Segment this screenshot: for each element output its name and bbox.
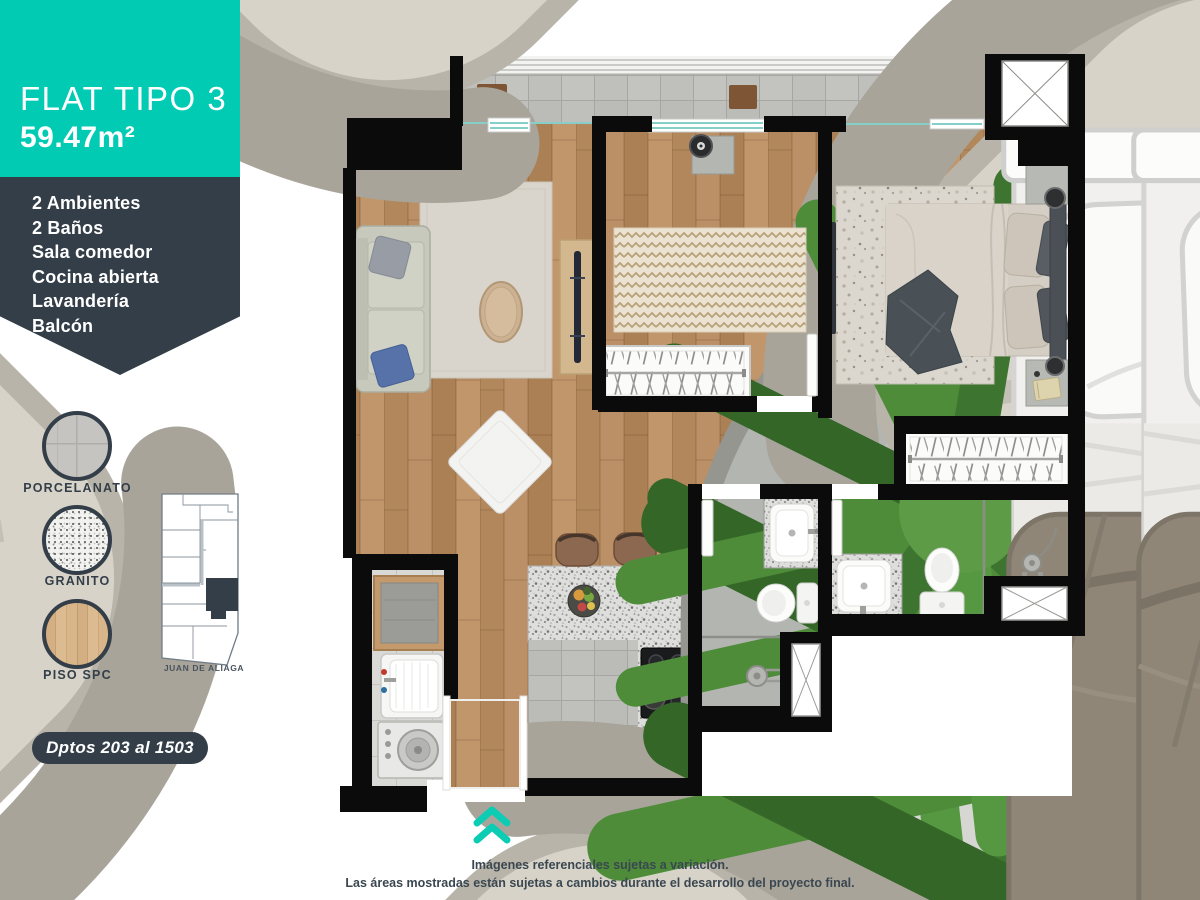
sink (837, 560, 891, 618)
page-title: FLAT TIPO 3 (20, 82, 240, 117)
laundry-sink (381, 654, 443, 718)
floors-badge: Dptos 203 al 1503 (32, 732, 208, 764)
disclaimer-line-2: Las áreas mostradas están sujetas a camb… (0, 874, 1200, 892)
headboard (1050, 196, 1066, 364)
porcelanato-swatch-icon (42, 411, 112, 481)
bedroom-door (807, 334, 817, 396)
elevator-shaft (1002, 61, 1068, 126)
laundry-area (374, 576, 445, 778)
header-banner: FLAT TIPO 3 59.47m² (0, 0, 240, 177)
window-sill (488, 118, 530, 132)
book (1033, 377, 1062, 400)
feature-item: Sala comedor (32, 240, 240, 265)
living-rug (420, 182, 552, 378)
floors-badge-text: Dptos 203 al 1503 (46, 738, 194, 758)
duct-shaft (792, 644, 820, 716)
disclaimer-line-1: Imágenes referenciales sujetas a variaci… (0, 856, 1200, 874)
disclaimer: Imágenes referenciales sujetas a variaci… (0, 856, 1200, 892)
double-bed (886, 196, 1070, 374)
fruit-bowl (568, 585, 600, 617)
location-minimap (156, 486, 248, 676)
entrance-door (443, 696, 527, 790)
sink (770, 504, 820, 562)
zigzag-rug (614, 228, 806, 332)
bathroom-door (702, 500, 713, 556)
exterior (702, 732, 832, 796)
clock (690, 135, 712, 157)
single-bed (1134, 130, 1200, 900)
tv-console (560, 240, 594, 374)
walk-in-closet (904, 432, 1068, 486)
feature-item: Cocina abierta (32, 265, 240, 290)
legend-label: PISO SPC (0, 668, 155, 682)
tv (574, 251, 581, 363)
lamp (1046, 357, 1064, 375)
legend-label: GRANITO (0, 574, 155, 588)
toilet (757, 583, 818, 623)
bathroom-door (832, 500, 842, 556)
bar-stool (556, 534, 598, 566)
feature-item: 2 Baños (32, 216, 240, 241)
exterior (832, 636, 1072, 796)
feature-item: Lavandería (32, 289, 240, 314)
legend-item-granito (42, 505, 112, 575)
area-value: 59.47m² (20, 121, 240, 155)
legend-item-piso-spc (42, 599, 112, 669)
piso-spc-swatch-icon (42, 599, 112, 669)
feature-item: 2 Ambientes (32, 191, 240, 216)
lamp (1045, 188, 1065, 208)
legend-label: PORCELANATO (0, 481, 155, 495)
flyer-page: FLAT TIPO 3 59.47m² 2 Ambientes 2 Baños … (0, 0, 1200, 900)
window-sill (648, 119, 766, 132)
legend-item-porcelanato (42, 411, 112, 481)
laundry-cabinet (374, 576, 445, 650)
entrance-chevron-icon (468, 804, 516, 846)
planter-box (729, 85, 757, 109)
street-label: JUAN DE ALIAGA (148, 663, 260, 673)
granito-swatch-icon (42, 505, 112, 575)
washing-machine (378, 722, 444, 778)
sofa (356, 226, 430, 392)
wardrobe (600, 346, 750, 400)
duct-shaft (1002, 587, 1067, 620)
